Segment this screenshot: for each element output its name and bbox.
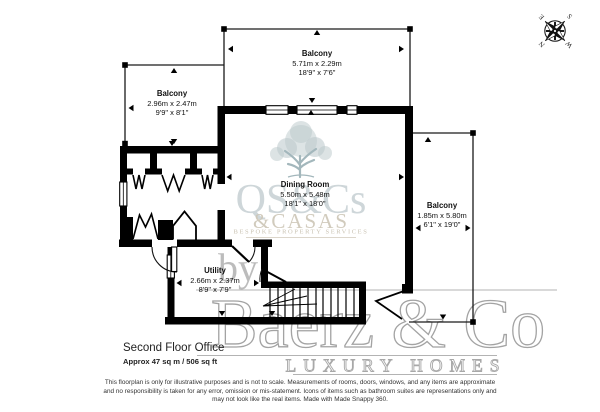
disclaimer-line-1: This floorplan is only for illustrative … <box>0 379 600 387</box>
utility-door-leaf <box>172 247 177 272</box>
total-area-text: Approx 47 sq m / 506 sq ft <box>123 357 217 366</box>
room-label-balcony-top: Balcony 5.71m x 2.29m 18'9" x 7'6" <box>292 49 342 78</box>
compass-east-label: E <box>537 13 546 22</box>
logo-tagline-text: BESPOKE PROPERTY SERVICES <box>234 229 369 236</box>
room-size-imperial: 18'1" x 18'0" <box>280 199 330 209</box>
room-size-metric: 5.71m x 2.29m <box>292 59 342 69</box>
room-size-imperial: 8'9" x 7'9" <box>190 285 240 295</box>
room-name: Dining Room <box>280 180 330 190</box>
room-name: Balcony <box>292 49 342 59</box>
room-name: Balcony <box>417 201 467 211</box>
disclaimer-line-2: and no responsibility is taken for any e… <box>0 388 600 396</box>
room-size-imperial: 18'9" x 7'6" <box>292 68 342 78</box>
compass-rose: N S E W <box>524 0 589 63</box>
room-size-metric: 1.85m x 5.80m <box>417 211 467 221</box>
compass-west-label: W <box>564 39 575 50</box>
floorplan-page: QS&Cs &CASAS BESPOKE PROPERTY SERVICES b… <box>0 0 600 412</box>
room-size-metric: 5.50m x 5.48m <box>280 190 330 200</box>
room-label-utility: Utility 2.66m x 2.37m 8'9" x 7'9" <box>190 266 240 295</box>
brand-watermark: Baerz & Co LUXURY HOMES <box>196 286 557 376</box>
room-label-balcony-left: Balcony 2.96m x 2.47m 9'9" x 8'1" <box>147 89 197 118</box>
disclaimer-line-3: may not look like the real items. Made w… <box>0 396 600 404</box>
room-label-dining-room: Dining Room 5.50m x 5.48m 18'1" x 18'0" <box>280 180 330 209</box>
room-size-imperial: 9'9" x 8'1" <box>147 108 197 118</box>
closet-door-icon <box>173 212 196 240</box>
tree-logo-icon <box>270 121 332 177</box>
room-size-imperial: 6'1" x 19'0" <box>417 220 467 230</box>
room-size-metric: 2.66m x 2.37m <box>190 276 240 286</box>
brand-tagline-text: LUXURY HOMES <box>286 356 507 376</box>
room-name: Utility <box>190 266 240 276</box>
compass-south-label: S <box>566 12 574 20</box>
room-label-balcony-right: Balcony 1.85m x 5.80m 6'1" x 19'0" <box>417 201 467 230</box>
page-title: Second Floor Office <box>123 342 224 354</box>
room-name: Balcony <box>147 89 197 99</box>
room-size-metric: 2.96m x 2.47m <box>147 99 197 109</box>
